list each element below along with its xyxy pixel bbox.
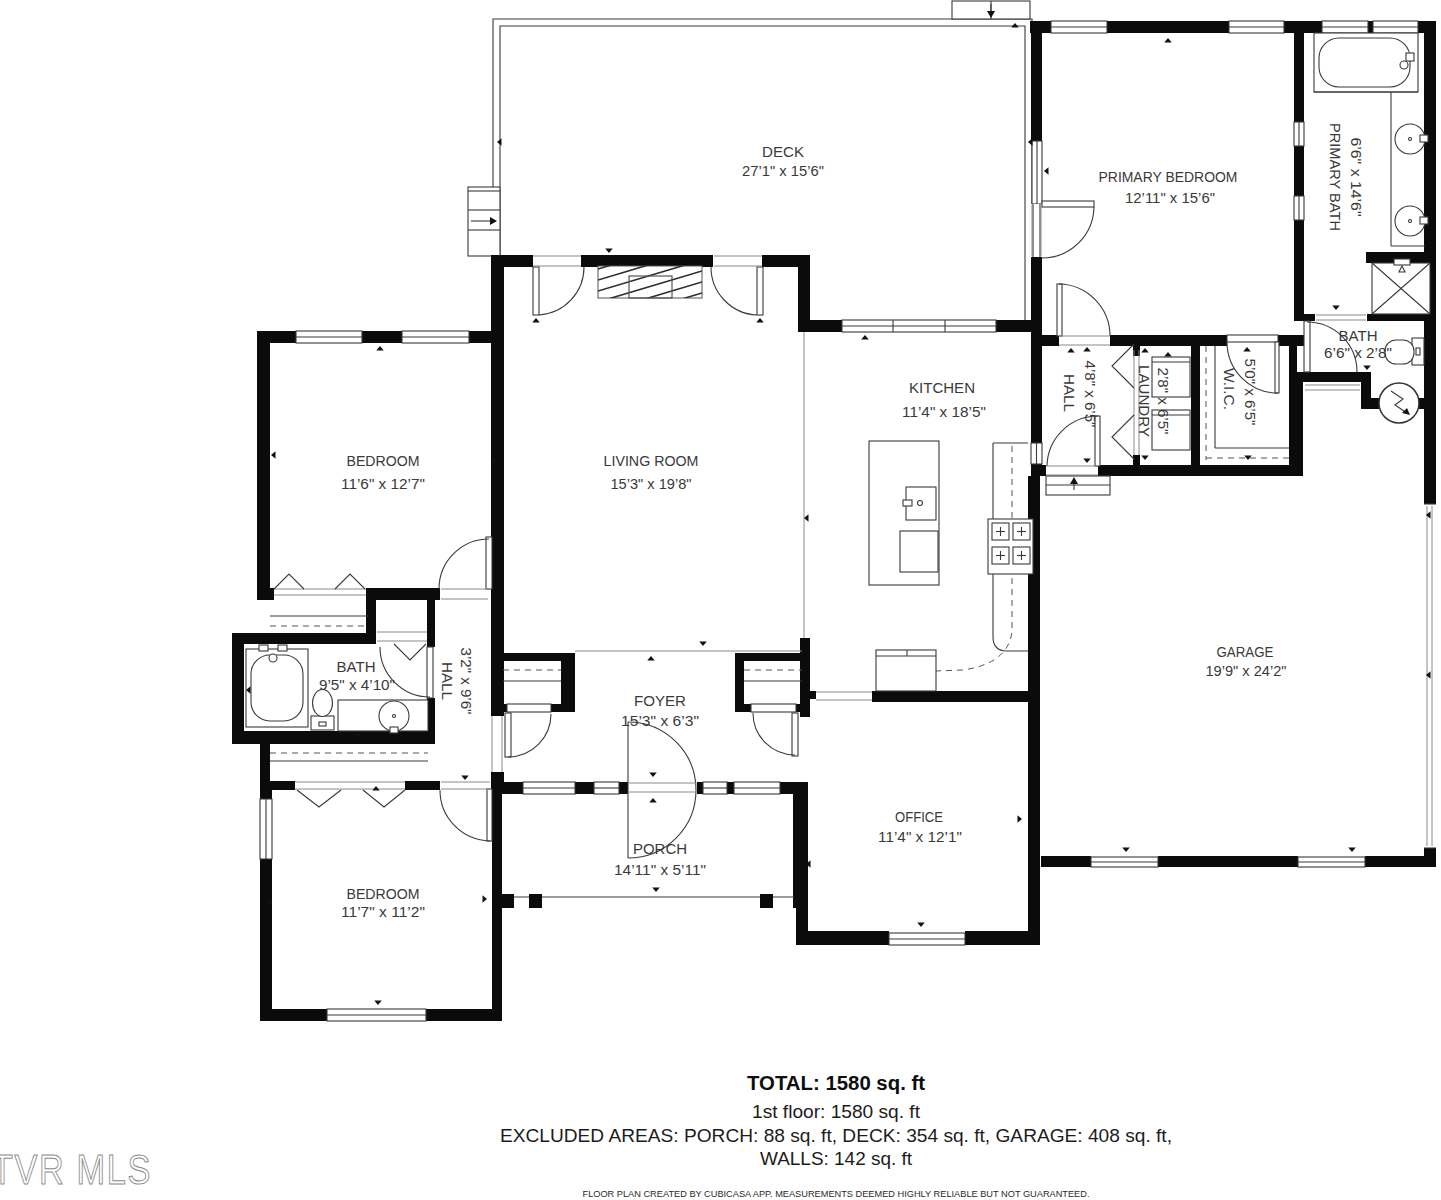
svg-text:PORCH: PORCH bbox=[633, 840, 687, 857]
svg-text:6’6" x 2’8": 6’6" x 2’8" bbox=[1324, 344, 1392, 361]
svg-text:PRIMARY BATH: PRIMARY BATH bbox=[1327, 123, 1344, 231]
svg-text:FLOOR PLAN CREATED BY CUBICASA: FLOOR PLAN CREATED BY CUBICASA APP. MEAS… bbox=[583, 1188, 1090, 1199]
svg-text:TVR MLS: TVR MLS bbox=[0, 1146, 152, 1193]
svg-text:PRIMARY BEDROOM: PRIMARY BEDROOM bbox=[1099, 168, 1238, 185]
svg-text:15’3" x 19’8": 15’3" x 19’8" bbox=[611, 475, 692, 492]
svg-text:EXCLUDED AREAS: PORCH: 88 sq.: EXCLUDED AREAS: PORCH: 88 sq. ft, DECK: … bbox=[500, 1125, 1172, 1146]
svg-text:OFFICE: OFFICE bbox=[895, 808, 943, 825]
svg-text:WALLS: 142 sq. ft: WALLS: 142 sq. ft bbox=[760, 1148, 913, 1169]
svg-text:1st floor: 1580 sq. ft: 1st floor: 1580 sq. ft bbox=[752, 1101, 921, 1122]
svg-text:HALL: HALL bbox=[1061, 374, 1078, 412]
svg-text:LIVING ROOM: LIVING ROOM bbox=[604, 452, 699, 469]
svg-text:27’1" x 15’6": 27’1" x 15’6" bbox=[742, 162, 824, 179]
svg-text:3’2" x 9’6": 3’2" x 9’6" bbox=[458, 648, 475, 715]
svg-text:BEDROOM: BEDROOM bbox=[347, 885, 420, 902]
svg-text:4’8" x 6’5": 4’8" x 6’5" bbox=[1082, 361, 1099, 428]
svg-text:TOTAL: 1580 sq. ft: TOTAL: 1580 sq. ft bbox=[747, 1072, 925, 1094]
svg-text:15’3" x 6’3": 15’3" x 6’3" bbox=[621, 712, 699, 729]
svg-text:11’7" x 11’2": 11’7" x 11’2" bbox=[341, 903, 425, 920]
svg-text:KITCHEN: KITCHEN bbox=[909, 379, 975, 396]
svg-text:9’5" x 4’10": 9’5" x 4’10" bbox=[319, 676, 395, 693]
svg-text:12’11" x 15’6": 12’11" x 15’6" bbox=[1125, 189, 1215, 206]
svg-text:BEDROOM: BEDROOM bbox=[347, 452, 420, 469]
svg-text:BATH: BATH bbox=[1339, 327, 1378, 344]
svg-text:11’6" x 12’7": 11’6" x 12’7" bbox=[341, 475, 425, 492]
svg-text:19’9" x 24’2": 19’9" x 24’2" bbox=[1206, 662, 1287, 679]
svg-text:6’6" x 14’6": 6’6" x 14’6" bbox=[1348, 138, 1365, 217]
svg-text:W.I.C.: W.I.C. bbox=[1221, 368, 1238, 410]
svg-text:5’0" x 6’5": 5’0" x 6’5" bbox=[1242, 359, 1259, 426]
svg-text:11’4" x 12’1": 11’4" x 12’1" bbox=[878, 828, 962, 845]
svg-text:2’8" x 6’5": 2’8" x 6’5" bbox=[1155, 368, 1172, 435]
svg-text:LAUNDRY: LAUNDRY bbox=[1136, 365, 1153, 437]
svg-text:FOYER: FOYER bbox=[634, 692, 686, 709]
svg-text:HALL: HALL bbox=[439, 662, 456, 700]
svg-text:DECK: DECK bbox=[762, 143, 805, 160]
svg-text:11’4" x 18’5": 11’4" x 18’5" bbox=[902, 403, 986, 420]
svg-text:BATH: BATH bbox=[337, 658, 376, 675]
svg-text:GARAGE: GARAGE bbox=[1217, 643, 1274, 660]
svg-text:14’11" x 5’11": 14’11" x 5’11" bbox=[614, 861, 706, 878]
